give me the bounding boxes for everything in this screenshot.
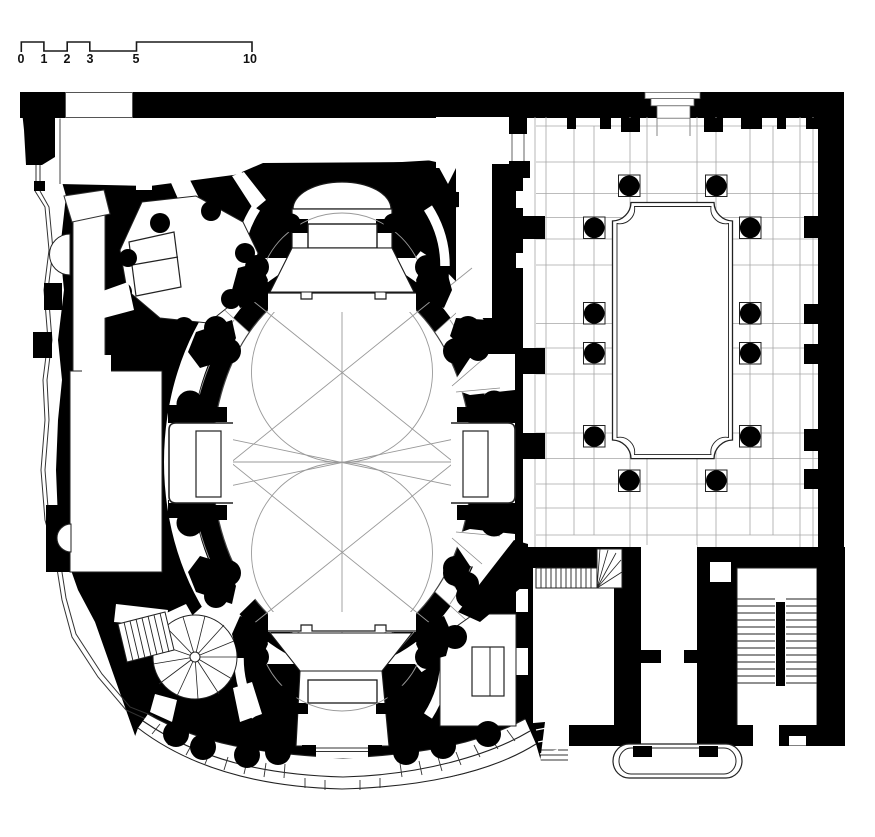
svg-text:3: 3: [87, 52, 94, 66]
svg-text:1: 1: [41, 52, 48, 66]
svg-text:0: 0: [18, 52, 25, 66]
svg-text:2: 2: [64, 52, 71, 66]
svg-text:10: 10: [243, 52, 257, 66]
svg-text:5: 5: [133, 52, 140, 66]
